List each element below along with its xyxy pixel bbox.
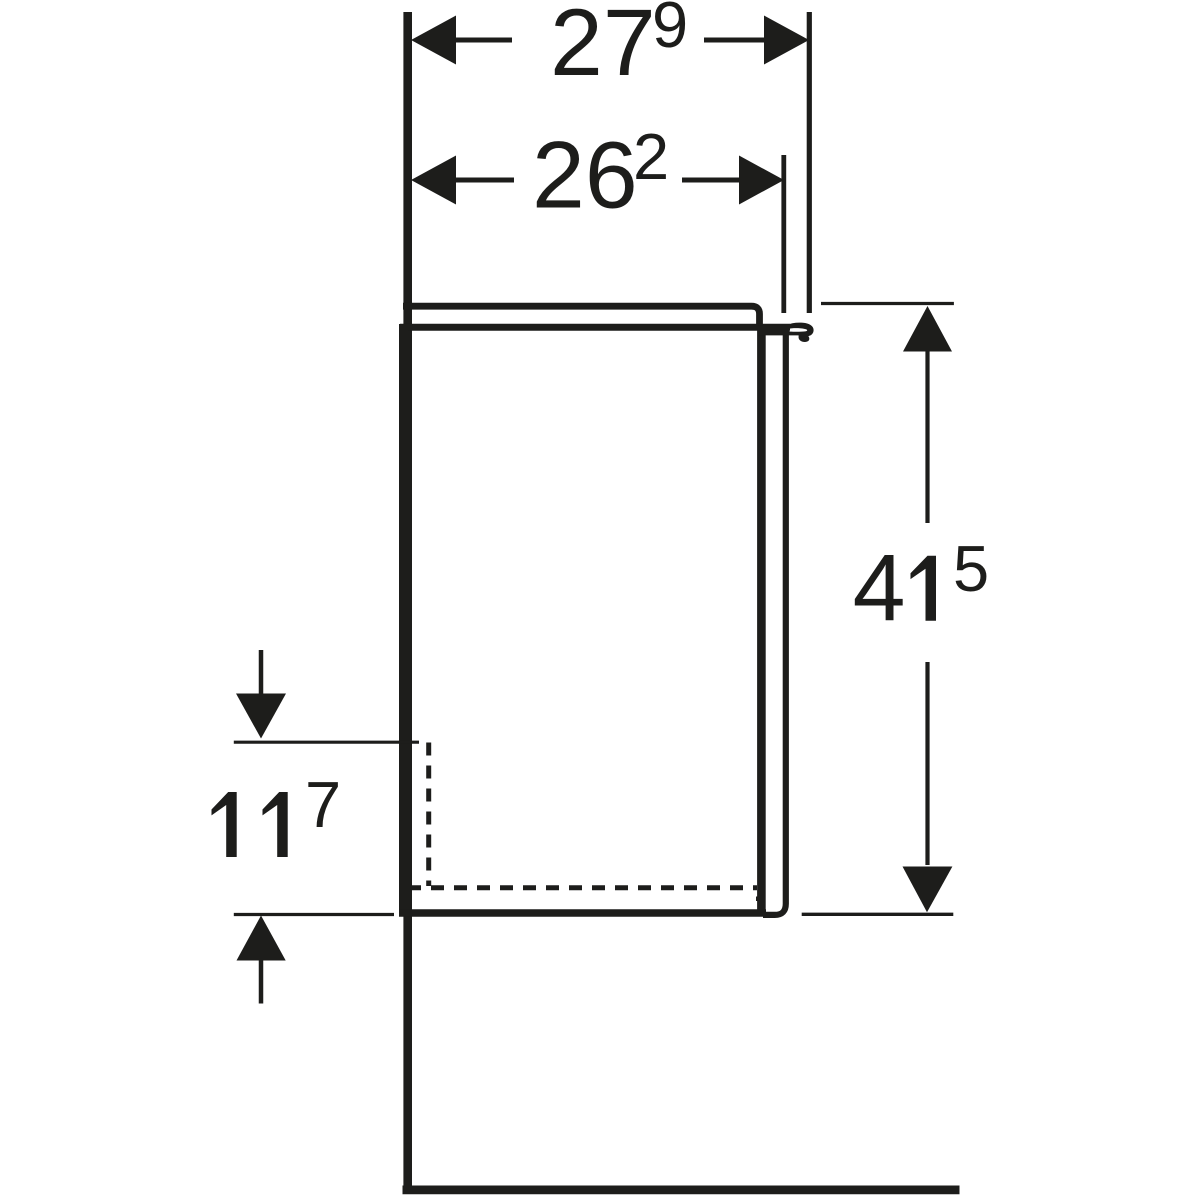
- svg-text:2: 2: [633, 120, 669, 193]
- svg-text:26: 26: [532, 123, 638, 229]
- svg-text:4: 4: [853, 536, 906, 642]
- svg-text:7: 7: [305, 768, 341, 841]
- svg-text:5: 5: [953, 532, 989, 605]
- svg-text:9: 9: [652, 0, 688, 61]
- svg-text:27: 27: [550, 0, 656, 96]
